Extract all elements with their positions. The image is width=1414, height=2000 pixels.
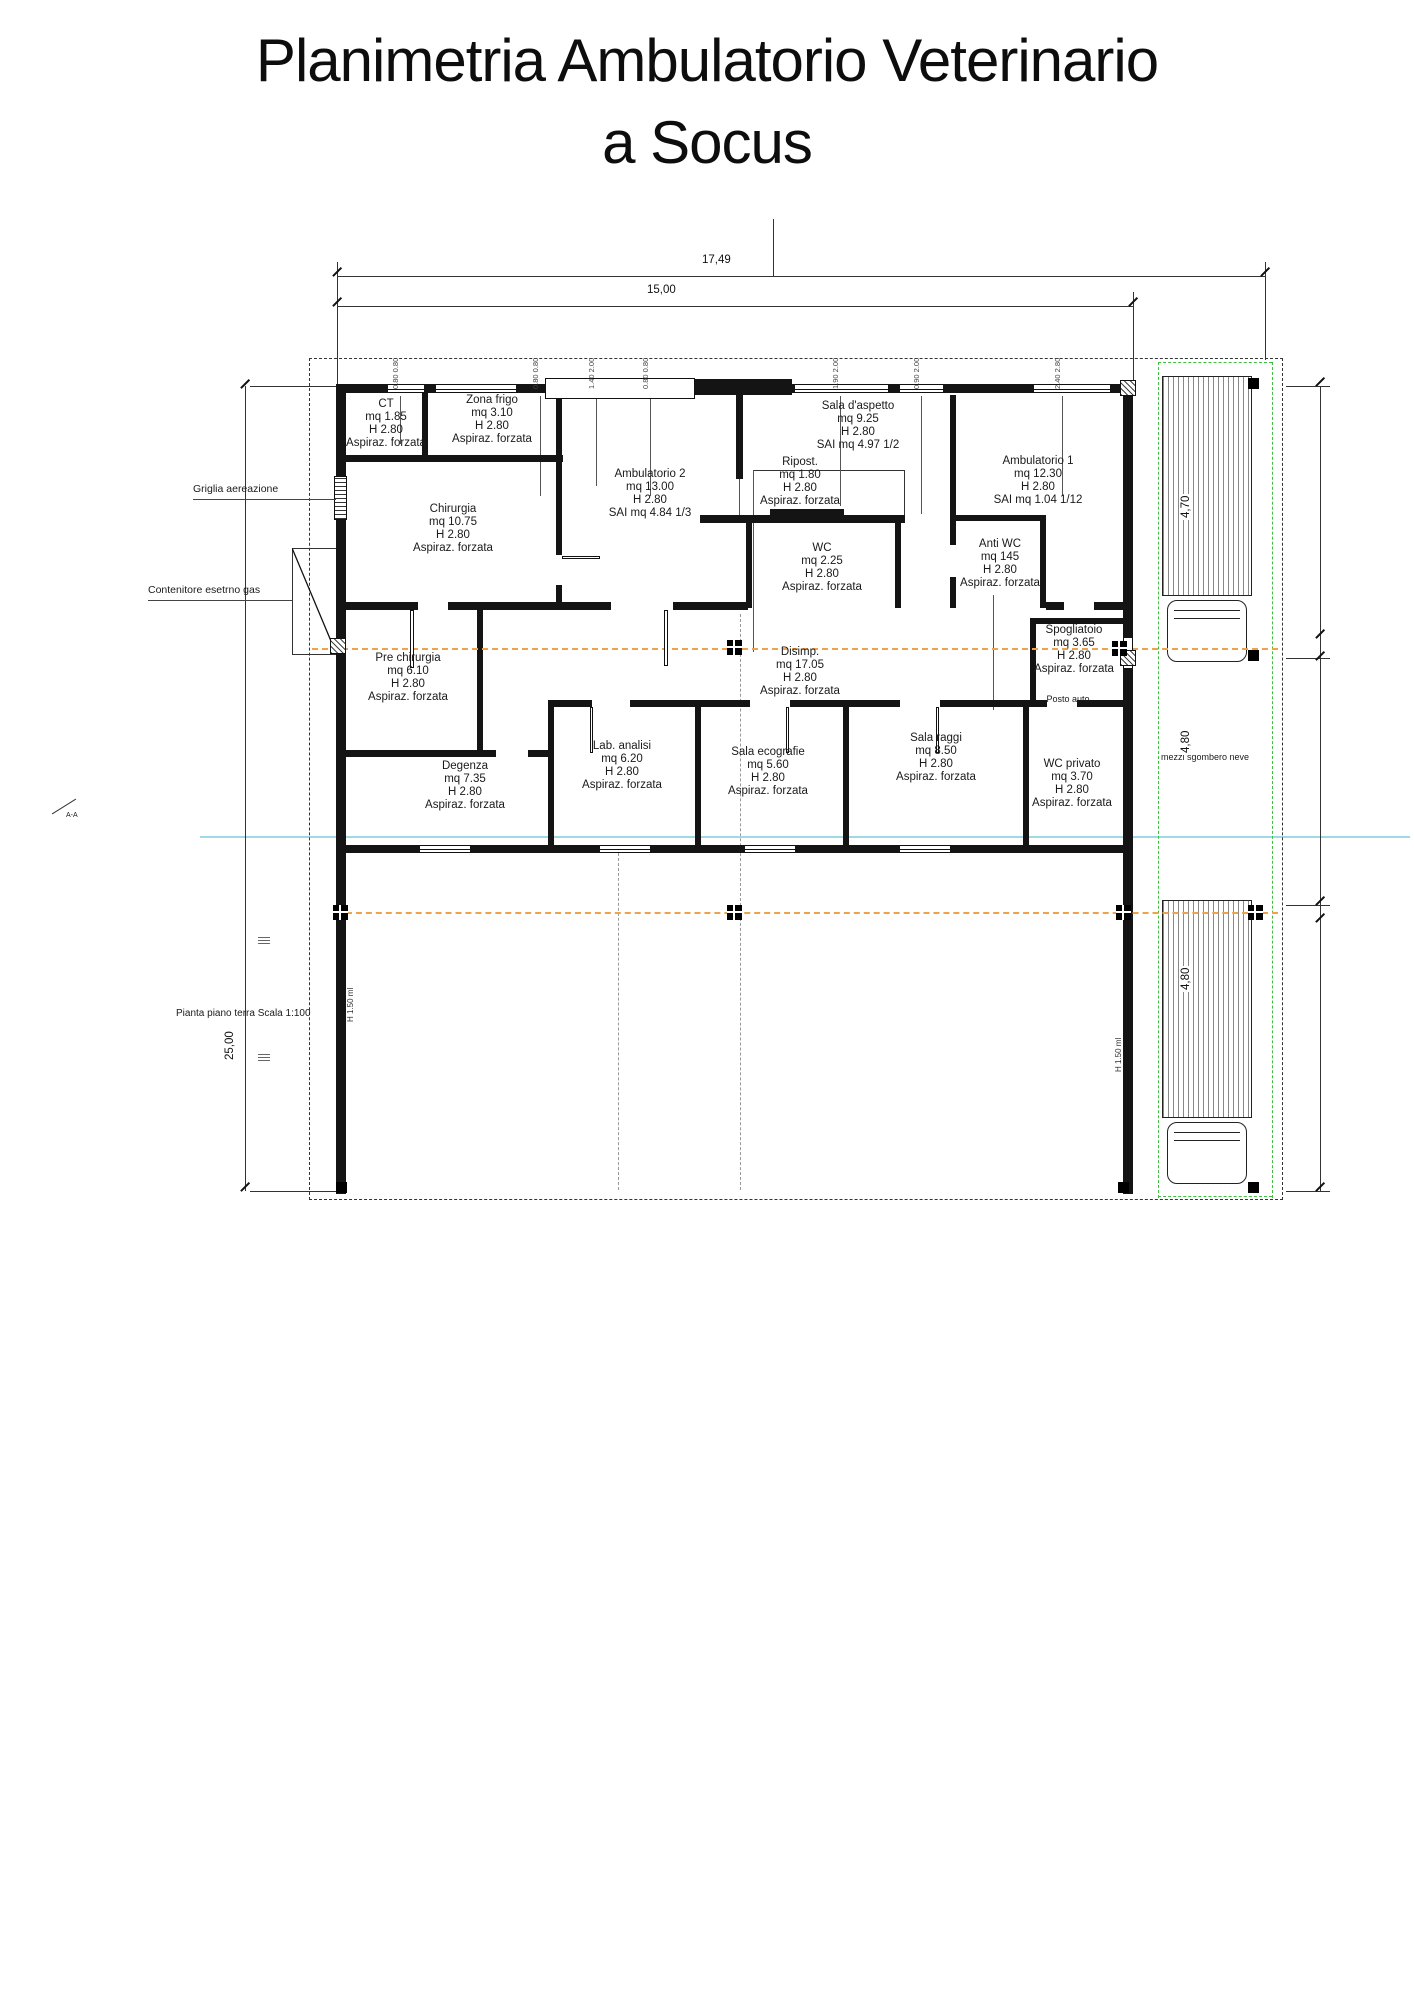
dimension-label-right-2: 4,80 [1180,729,1192,755]
wall [630,700,750,707]
room-height: H 2.80 [346,424,426,437]
room-note: Aspiraz. forzata [368,691,448,704]
room-area: mq 5.60 [728,759,808,772]
bay-boundary-green [1158,362,1272,363]
floorplan-page: { "title": { "line1": "Planimetria Ambul… [0,0,1414,2000]
room-area: mq 2.25 [782,555,862,568]
room-note: SAI mq 1.04 1/12 [994,494,1083,507]
extension-line [337,262,338,392]
wall [342,455,563,462]
truck-cab [1167,600,1247,662]
wall [950,577,956,608]
room-name: Ambulatorio 2 [609,468,691,481]
hatch-mark [258,935,270,944]
room-area: mq 10.75 [413,516,493,529]
room-name: Zona frigo [452,394,532,407]
dimension-line-top-outer [337,276,1265,277]
partition-line [739,479,740,515]
room-height: H 2.80 [582,766,662,779]
column-marker [1120,380,1136,396]
room-zona-frigo: Zona frigomq 3.10H 2.80Aspiraz. forzata [452,394,532,446]
column-marker [1118,1182,1129,1193]
room-name: Spogliatoio [1034,624,1114,637]
wall [843,706,849,845]
extension-line [1286,658,1330,659]
window-size-label: 1.90 2.00 [831,358,840,389]
room-pre-chirurgia: Pre chirurgiamq 6.10H 2.80Aspiraz. forza… [368,652,448,704]
entry-door [545,378,695,399]
room-area: mq 145 [960,551,1040,564]
room-ambulatorio-1: Ambulatorio 1mq 12.30H 2.80SAI mq 1.04 1… [994,455,1083,507]
room-height: H 2.80 [896,758,976,771]
room-height: H 2.80 [609,494,691,507]
room-degenza: Degenzamq 7.35H 2.80Aspiraz. forzata [425,760,505,812]
room-height: H 2.80 [994,481,1083,494]
leader-line [540,396,541,496]
room-height: H 2.80 [425,786,505,799]
wall [1094,602,1123,610]
room-area: mq 3.70 [1032,771,1112,784]
room-height: H 2.80 [368,678,448,691]
wall [950,515,1046,521]
column-marker [1248,378,1259,389]
room-ripostiglio: Ripost.mq 1.80H 2.80Aspiraz. forzata [760,456,840,508]
room-note: Aspiraz. forzata [960,577,1040,590]
column-marker [1116,905,1131,920]
contenitore-label: Contenitore esetrno gas [148,584,260,596]
extension-line [250,1191,336,1192]
dimension-label-top-inner: 15,00 [645,284,678,296]
column-marker [727,905,742,920]
room-note: Aspiraz. forzata [760,495,840,508]
room-note: Aspiraz. forzata [728,785,808,798]
room-height: H 2.80 [1032,784,1112,797]
room-chirurgia: Chirurgiamq 10.75H 2.80Aspiraz. forzata [413,503,493,555]
room-name: Ripost. [760,456,840,469]
truck-cab [1167,1122,1247,1184]
room-wc-privato: WC privatomq 3.70H 2.80Aspiraz. forzata [1032,758,1112,810]
wall [548,700,554,845]
wall [448,602,611,610]
room-sala-aspetto: Sala d'aspettomq 9.25H 2.80SAI mq 4.97 1… [817,400,899,452]
bay-boundary-green [1272,362,1273,1198]
wall [950,395,956,545]
room-note: SAI mq 4.97 1/2 [817,439,899,452]
hatch-mark [258,1052,270,1061]
room-height: H 2.80 [1034,650,1114,663]
column-marker [333,905,348,920]
room-area: mq 9.25 [817,413,899,426]
window-size-label: 2.40 2.80 [1053,358,1062,389]
room-area: mq 3.10 [452,407,532,420]
leader-line [993,595,994,710]
page-title-line1: Planimetria Ambulatorio Veterinario [0,26,1414,95]
wall [695,706,701,845]
room-note: Aspiraz. forzata [425,799,505,812]
bay-boundary-green [1158,362,1159,1198]
window [600,845,650,853]
column-marker [1248,905,1263,920]
room-area: mq 1.80 [760,469,840,482]
wall [1046,602,1064,610]
window [420,845,470,853]
truck-bed [1162,376,1252,596]
room-height: H 2.80 [817,426,899,439]
room-height: H 2.80 [760,482,840,495]
extension-line [1133,292,1134,384]
room-note: Aspiraz. forzata [582,779,662,792]
room-wc: WCmq 2.25H 2.80Aspiraz. forzata [782,542,862,594]
wall [1123,384,1133,1194]
room-name: WC [782,542,862,555]
room-sala-ecografie: Sala ecografiemq 5.60H 2.80Aspiraz. forz… [728,746,808,798]
door-panel [770,509,844,517]
window-size-label: 1.40 2.00 [587,358,596,389]
room-name: Disimp. [760,646,840,659]
wall [746,523,752,608]
section-label: A-A [66,812,78,819]
window-size-label: 0.80 0.80 [531,358,540,389]
room-note: Aspiraz. forzata [452,433,532,446]
dimension-label-right-3: 4,80 [1180,966,1192,992]
room-area: mq 8.50 [896,745,976,758]
wall [940,700,1030,707]
window [795,384,888,393]
dimension-label-right-1: 4,70 [1180,494,1192,520]
room-ct: CTmq 1.85H 2.80Aspiraz. forzata [346,398,426,450]
extension-line [773,219,774,277]
column-marker [336,1182,347,1193]
wall [736,395,743,479]
extension-line [1286,1191,1330,1192]
wall [556,393,562,555]
wall [342,750,496,757]
room-height: H 2.80 [413,529,493,542]
partition-line [753,470,754,652]
extension-line [1265,262,1266,360]
bay-boundary-green [1158,1196,1272,1197]
column-marker [727,640,742,655]
room-area: mq 17.05 [760,659,840,672]
room-sala-raggi: Sala raggimq 8.50H 2.80Aspiraz. forzata [896,732,976,784]
column-marker [330,638,346,654]
room-name: Chirurgia [413,503,493,516]
dimension-label-left: 25,00 [224,1029,236,1062]
wall [673,602,748,610]
leader-line [148,600,292,601]
room-name: Sala raggi [896,732,976,745]
room-name: Lab. analisi [582,740,662,753]
room-name: WC privato [1032,758,1112,771]
dimension-line-right [1320,386,1321,1191]
wall [477,608,483,756]
dimension-line-left [245,386,246,1191]
truck-bed [1162,900,1252,1118]
room-anti-wc: Anti WCmq 145H 2.80Aspiraz. forzata [960,538,1040,590]
window [436,384,516,393]
room-note: Aspiraz. forzata [346,437,426,450]
room-note: Aspiraz. forzata [413,542,493,555]
parapet-label-left: H 1.50 ml [346,988,355,1022]
reference-line-orange-2 [336,912,1278,914]
room-note: Aspiraz. forzata [760,685,840,698]
column-marker [1112,641,1127,656]
dimension-line-top-inner [337,306,1133,307]
vent-grille [334,476,347,520]
door-leaf [562,556,600,559]
room-area: mq 3.65 [1034,637,1114,650]
page-title-line2: a Socus [0,108,1414,177]
leader-line [921,396,922,514]
room-note: SAI mq 4.84 1/3 [609,507,691,520]
wall [895,515,901,608]
room-note: Aspiraz. forzata [782,581,862,594]
room-name: Sala d'aspetto [817,400,899,413]
room-height: H 2.80 [760,672,840,685]
room-name: Pre chirurgia [368,652,448,665]
window [900,845,950,853]
extension-line [250,386,336,387]
extension-line [1286,386,1330,387]
scala-label: Pianta piano terra Scala 1:100 [176,1008,311,1019]
dimension-label-top-outer: 17,49 [700,254,733,266]
room-name: Sala ecografie [728,746,808,759]
room-height: H 2.80 [960,564,1040,577]
room-height: H 2.80 [782,568,862,581]
room-name: Ambulatorio 1 [994,455,1083,468]
leader-line [193,499,336,500]
leader-line [596,396,597,486]
room-disimpegno: Disimp.mq 17.05H 2.80Aspiraz. forzata [760,646,840,698]
room-name: Degenza [425,760,505,773]
room-name: CT [346,398,426,411]
room-height: H 2.80 [728,772,808,785]
room-note: Aspiraz. forzata [1032,797,1112,810]
window-size-label: 0.80 0.80 [641,358,650,389]
window-size-label: 0.80 0.80 [391,358,400,389]
room-spogliatoio: Spogliatoiomq 3.65H 2.80Aspiraz. forzata [1034,624,1114,676]
room-area: mq 6.20 [582,753,662,766]
column-marker [1248,1182,1259,1193]
window [745,845,795,853]
room-name: Anti WC [960,538,1040,551]
wall [1023,706,1029,845]
room-note: Aspiraz. forzata [896,771,976,784]
room-height: H 2.80 [452,420,532,433]
wall [342,602,418,610]
parapet-label-right: H 1.50 ml [1114,1038,1123,1072]
extension-line [1286,905,1330,906]
wall [554,700,592,707]
window [900,384,943,393]
griglia-label: Griglia aereazione [193,483,278,495]
room-area: mq 13.00 [609,481,691,494]
window [1034,384,1110,393]
wall [1040,521,1046,608]
posto-auto-label: Posto auto [1046,694,1089,704]
room-note: Aspiraz. forzata [1034,663,1114,676]
room-area: mq 6.10 [368,665,448,678]
mezzi-sgombero-label: mezzi sgombero neve [1161,752,1249,762]
room-area: mq 12.30 [994,468,1083,481]
room-ambulatorio-2: Ambulatorio 2mq 13.00H 2.80SAI mq 4.84 1… [609,468,691,520]
room-area: mq 1.85 [346,411,426,424]
door-leaf [664,610,668,666]
room-lab-analisi: Lab. analisimq 6.20H 2.80Aspiraz. forzat… [582,740,662,792]
column-marker [1248,650,1259,661]
window-size-label: 0.90 2.00 [912,358,921,389]
room-area: mq 7.35 [425,773,505,786]
